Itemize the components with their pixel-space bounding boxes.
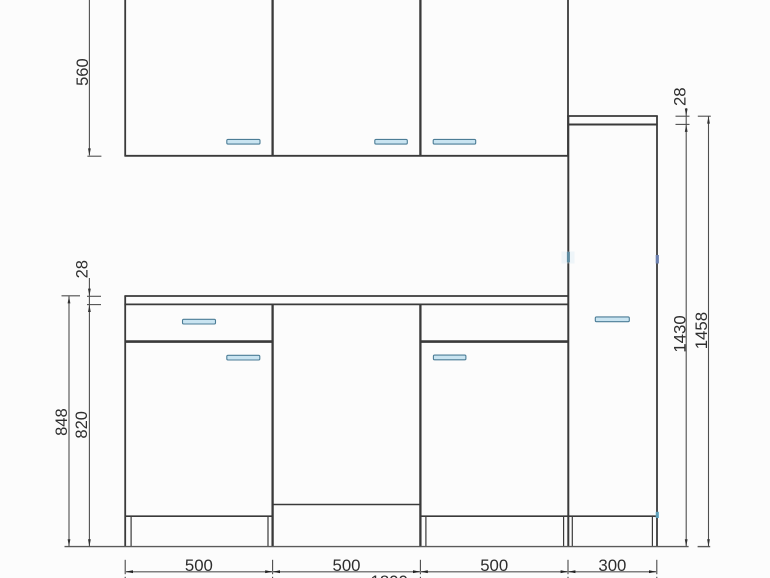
svg-text:820: 820 — [73, 411, 91, 439]
svg-text:500: 500 — [185, 556, 213, 575]
svg-text:28: 28 — [670, 87, 689, 106]
svg-text:1458: 1458 — [692, 312, 711, 349]
svg-text:848: 848 — [53, 408, 71, 436]
svg-text:500: 500 — [333, 556, 361, 575]
svg-text:28: 28 — [74, 260, 92, 278]
svg-text:300: 300 — [598, 556, 626, 575]
svg-text:560: 560 — [74, 58, 92, 86]
svg-text:1800: 1800 — [371, 572, 408, 578]
svg-text:1430: 1430 — [671, 315, 690, 352]
svg-text:500: 500 — [480, 556, 508, 575]
